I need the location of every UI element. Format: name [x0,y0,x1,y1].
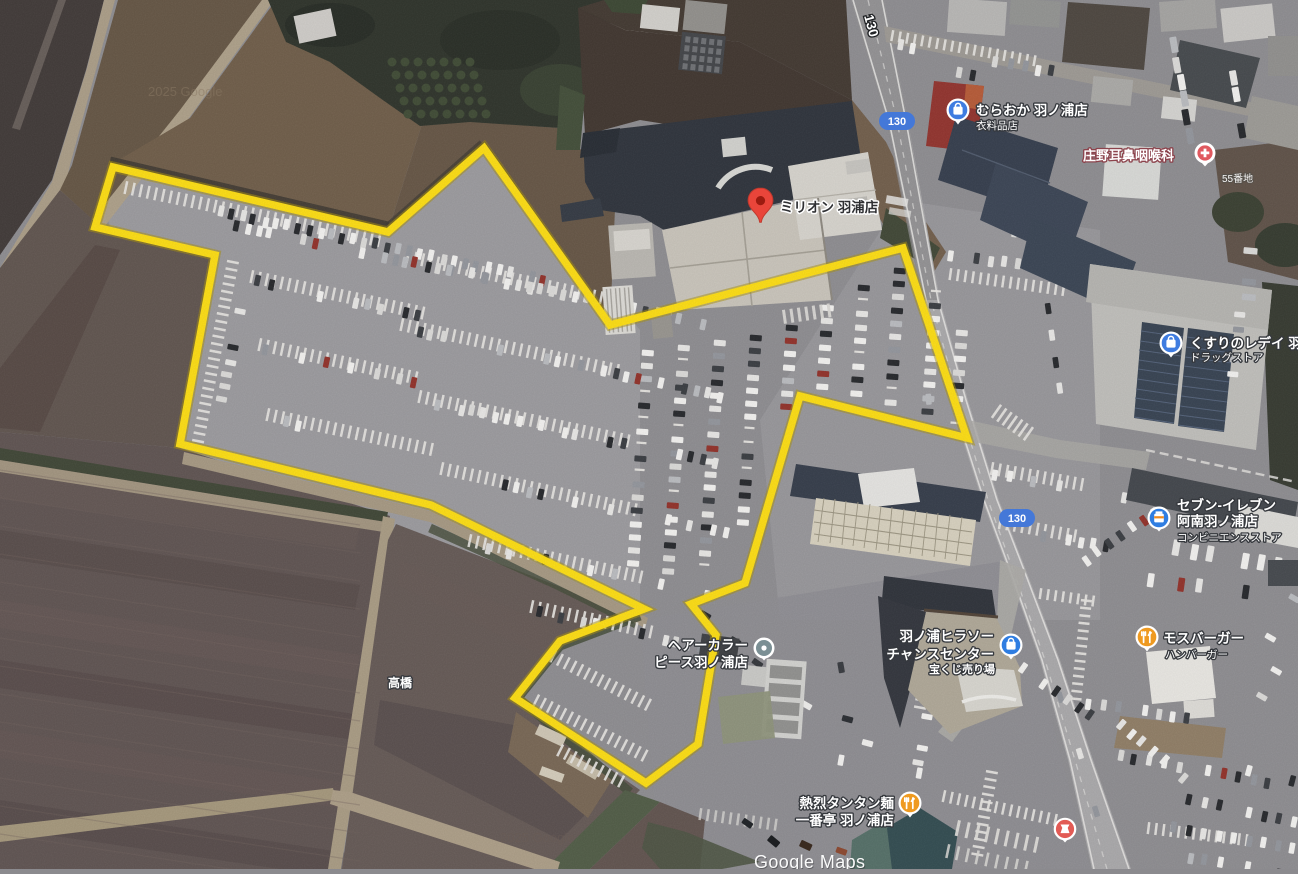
svg-text:羽ノ浦ヒラソー: 羽ノ浦ヒラソー [900,628,995,644]
svg-text:セブン-イレブン: セブン-イレブン [1177,497,1276,513]
svg-text:熱烈タンタン麺: 熱烈タンタン麺 [800,795,895,811]
svg-text:モスバーガー: モスバーガー [1163,631,1244,646]
svg-text:ミリオン 羽浦店: ミリオン 羽浦店 [780,199,879,215]
svg-text:くすりのレデイ 羽: くすりのレデイ 羽 [1190,335,1298,351]
svg-text:庄野耳鼻咽喉科: 庄野耳鼻咽喉科 [1083,148,1174,163]
svg-text:130: 130 [1008,513,1026,525]
svg-text:ドラッグストア: ドラッグストア [1190,351,1264,364]
svg-text:コンビニエンスストア: コンビニエンスストア [1177,532,1282,544]
svg-text:2025 Google: 2025 Google [500,830,574,845]
svg-text:ピース羽ノ浦店: ピース羽ノ浦店 [654,654,748,670]
svg-text:一番亭 羽ノ浦店: 一番亭 羽ノ浦店 [796,812,895,828]
svg-text:55番地: 55番地 [1222,172,1253,185]
svg-text:宝くじ売り場: 宝くじ売り場 [929,662,995,676]
svg-text:チャンスセンター: チャンスセンター [886,647,994,662]
svg-text:阿南羽ノ浦店: 阿南羽ノ浦店 [1177,513,1258,529]
svg-text:2025 Google: 2025 Google [148,84,222,99]
svg-text:ヘアーカラー: ヘアーカラー [668,638,748,653]
svg-text:130: 130 [888,116,906,128]
svg-text:ハンバーガー: ハンバーガー [1165,649,1228,661]
svg-text:むらおか 羽ノ浦店: むらおか 羽ノ浦店 [976,102,1088,118]
svg-text:Google Maps: Google Maps [754,852,865,869]
svg-text:衣料品店: 衣料品店 [976,119,1018,132]
svg-text:高橋: 高橋 [388,675,413,690]
